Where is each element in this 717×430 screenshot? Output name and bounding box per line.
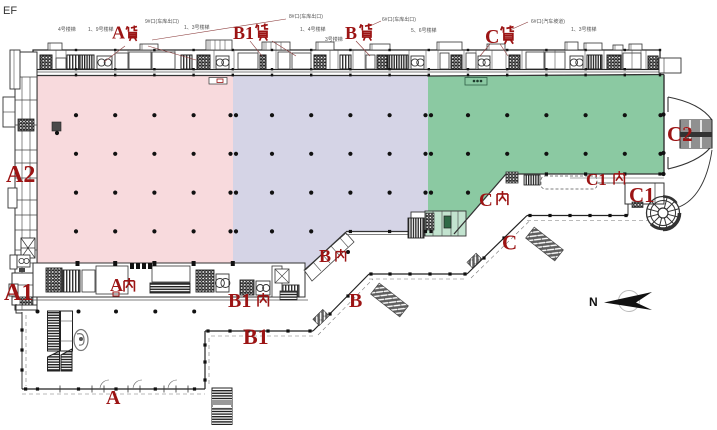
svg-text:B: B (345, 23, 357, 43)
svg-text:5、6号楼梯: 5、6号楼梯 (411, 27, 437, 34)
svg-text:B: B (319, 246, 331, 266)
svg-text:C1: C1 (586, 170, 607, 189)
svg-text:B: B (349, 290, 362, 312)
svg-text:B1: B1 (243, 324, 269, 349)
svg-text:B1: B1 (233, 23, 254, 43)
svg-text:A1: A1 (4, 280, 33, 306)
svg-text:C: C (485, 26, 499, 48)
svg-text:C: C (479, 190, 493, 211)
svg-text:A: A (112, 23, 125, 43)
svg-text:9#口(车库出口): 9#口(车库出口) (145, 18, 179, 25)
svg-text:C1: C1 (629, 183, 655, 207)
svg-text:1、3号楼梯: 1、3号楼梯 (184, 24, 210, 31)
svg-text:6#口(汽车坡道): 6#口(汽车坡道) (531, 18, 565, 25)
svg-text:6#口(车库出口): 6#口(车库出口) (382, 16, 416, 23)
svg-text:1、3号楼梯: 1、3号楼梯 (571, 26, 597, 33)
svg-text:1、4号楼梯: 1、4号楼梯 (300, 26, 326, 33)
svg-text:C2: C2 (667, 122, 693, 146)
svg-text:3号楼梯: 3号楼梯 (325, 36, 343, 43)
svg-text:1、9号楼梯: 1、9号楼梯 (88, 26, 114, 33)
svg-text:A: A (106, 387, 121, 409)
svg-text:A2: A2 (6, 162, 35, 188)
svg-text:N: N (589, 295, 598, 309)
svg-text:C: C (502, 231, 517, 255)
svg-text:4号楼梯: 4号楼梯 (58, 26, 76, 33)
svg-text:EF: EF (3, 5, 17, 17)
svg-text:8#口(车库出口): 8#口(车库出口) (289, 13, 323, 20)
svg-text:B1: B1 (228, 290, 251, 312)
